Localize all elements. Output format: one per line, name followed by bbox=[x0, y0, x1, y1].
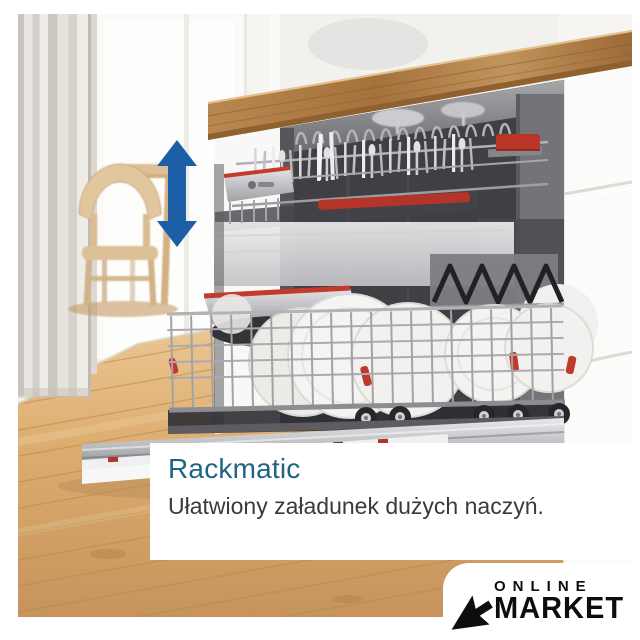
logo-word-market: MARKET bbox=[494, 592, 624, 626]
feature-subtitle: Ułatwiony załadunek dużych naczyń. bbox=[168, 492, 632, 520]
caption-box: Rackmatic Ułatwiony załadunek dużych nac… bbox=[150, 443, 632, 560]
feature-title: Rackmatic bbox=[168, 453, 632, 485]
lower-rack bbox=[167, 288, 593, 434]
logo-wordmark: ONLINE MARKET bbox=[494, 578, 624, 625]
promo-image: Rackmatic Ułatwiony załadunek dużych nac… bbox=[0, 0, 640, 640]
red-rack-handle bbox=[496, 134, 540, 151]
online-market-logo: ONLINE MARKET bbox=[443, 563, 640, 640]
